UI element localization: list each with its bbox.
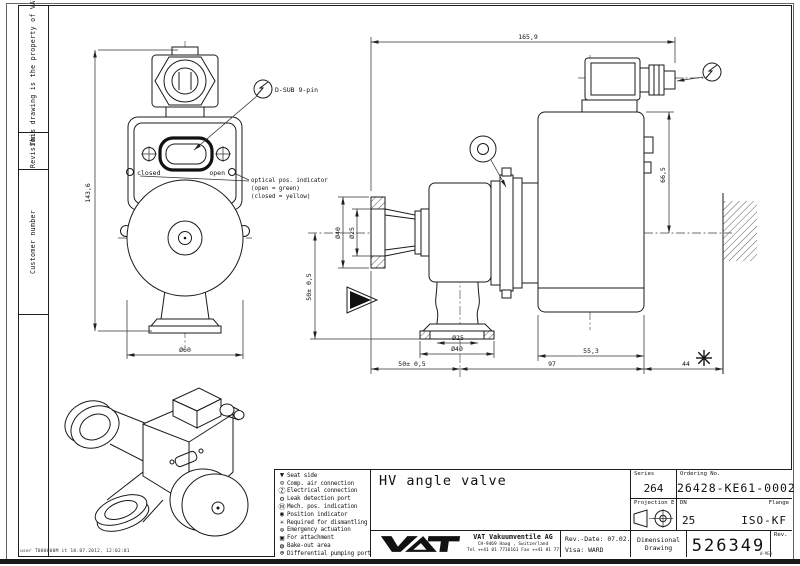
property-note: This drawing is the property of VAT. [29,0,37,146]
company-phone: Tel ++41 81 7716161 Fax ++41 81 7714830 [467,548,559,553]
flange-label: Flange [769,500,789,506]
bottom-flange [149,319,221,333]
legend-label: Position indicator [287,512,347,518]
inlet-flange [371,197,429,268]
legend-item: ⊕Differential pumping port [275,550,370,558]
projection-cell: Projection E [630,498,676,530]
electrical-connection-icon [254,80,272,98]
company-cell: VAT Vakuumventile AG CH-9469 Haag , Swit… [370,530,560,557]
electrical-connection-icon [703,63,721,81]
revision-label: Revision [29,134,37,168]
visa: Visa: WARD [565,546,603,554]
legend-item: ⊙Comp. air connection [275,480,370,488]
ordering-no-cell: Ordering No. 26428-KE61-0002 [676,469,792,498]
dim-chain-left: 50± 0,5 [398,360,425,368]
doc-type-cell: Dimensional Drawing [630,530,686,557]
rev-label: Rev. [774,532,787,538]
seat-side-marker [347,287,377,313]
dim-height: 143,6 [84,183,92,203]
rev-date: Rev.-Date: 07.02.12 [565,535,638,543]
dim-actuator-width: 55,3 [583,347,599,355]
valve-body-side [429,168,538,298]
indicator-note-2: (open = green) [251,186,300,192]
company-name: VAT Vakuumventile AG [467,533,559,541]
dismantling-star [696,350,712,366]
legend-label: For attachment [287,535,334,541]
dn-label: DN [680,500,687,506]
company-info: VAT Vakuumventile AG CH-9469 Haag , Swit… [467,533,559,553]
actuator-cylinder [538,95,653,312]
electrical-connection-icon: Ⓩ [277,488,287,495]
open-label: open [209,169,225,177]
dim-center-to-flange: 50± 0,5 [305,273,313,300]
dn-flange-cell: DN Flange 25 ISO-KF [676,498,792,530]
drawing-number: 526349 [687,536,770,556]
legend-label: Electrical connection [287,488,357,494]
sidebar-property-cell: This drawing is the property of VAT. [18,6,48,133]
sidebar-divider [48,5,49,557]
dim-height-right: 66,5 [659,167,667,183]
leak-detection-icon: ⚙ [277,496,287,503]
projection-label: Projection E [634,500,674,506]
drawing-sheet: This drawing is the property of VAT. Rev… [0,0,800,566]
dim-actuator-diameter: Ø60 [179,346,191,354]
rev-cell: Rev. [770,530,792,557]
dim-port-id: Ø25 [348,227,356,239]
ordering-no-value: 26428-KE61-0002 [677,481,792,495]
ordering-no-label: Ordering No. [680,471,720,477]
pneumatic-actuator [121,180,250,319]
dim-chain-right: 44 [682,360,690,368]
legend-label: Leak detection port [287,496,351,502]
company-address: CH-9469 Haag , Switzerland [467,542,559,547]
diff-pumping-icon: ⊕ [277,550,287,557]
legend-item: ⓏElectrical connection [275,488,370,496]
legend-item: ◍Bake-out area [275,542,370,550]
revision-date-cell: Rev.-Date: 07.02.12 Visa: WARD [560,530,630,557]
isometric-view-drawing [55,372,280,556]
dim-overall: 165,9 [518,33,538,41]
legend-item: ⊜Emergency actuation [275,527,370,535]
flange-value: ISO-KF [741,514,787,527]
legend-label: Required for dismantling [287,520,367,526]
dn-value: 25 [682,514,695,527]
legend-item: ✳Required for dismantling [275,519,370,527]
series-label: Series [634,471,654,477]
legend: ▼Seat side ⊙Comp. air connection ⓏElectr… [274,469,370,557]
drawing-title: HV angle valve [379,473,507,489]
legend-label: Emergency actuation [287,527,351,533]
dim-bottom-od: Ø40 [451,345,463,353]
mounting-wall [723,193,757,374]
bottom-port [420,282,494,339]
dim-port-od: Ø40 [334,227,342,239]
doc-type-line1: Dimensional [631,536,686,544]
legend-label: Differential pumping port [287,551,371,557]
legend-item: ⚙Leak detection port [275,495,370,503]
iso-rear-flange [58,393,155,465]
solenoid-actuator [152,47,218,107]
legend-item: ▣For attachment [275,534,370,542]
dim-chain-mid: 97 [548,360,556,368]
page-edge-bar [0,559,800,564]
emergency-actuation-icon: ⊜ [277,527,287,534]
sidebar-revision-cell: Revision [18,133,48,170]
legend-label: Seat side [287,473,317,479]
legend-label: Bake-out area [287,543,331,549]
front-view-drawing: D-SUB 9-pin closed open optical pos. ind… [60,25,330,370]
corner-mark: W-MEA [760,551,772,556]
legend-item: ▼Seat side [275,472,370,480]
side-view-drawing: 165,9 66,5 Ø40 Ø25 50± 0,5 Ø25 Ø40 [300,25,795,380]
series-cell: Series 264 [630,469,676,498]
legend-label: Mech. pos. indication [287,504,357,510]
vat-logo [376,533,464,555]
legend-label: Comp. air connection [287,481,354,487]
doc-type-line2: Drawing [631,544,686,552]
solenoid-connector [585,58,721,100]
series-value: 264 [631,482,676,495]
sidebar-customer-cell: Customer number [18,170,48,315]
legend-item: ◉Position indicator [275,511,370,519]
plot-footer-note: user T000000M it 10.07.2012, 12:02:01 [20,549,130,554]
projection-symbol-icon [633,508,675,529]
iso-actuator-disc [170,469,248,536]
position-indicator-icon [470,136,496,162]
customer-number-label: Customer number [29,210,37,274]
attachment-icon: ▣ [277,535,287,542]
title-cell: HV angle valve [370,469,630,530]
drawing-number-cell: 526349 [686,530,770,557]
dim-bottom-id: Ø25 [452,334,464,342]
legend-item: ⓂMech. pos. indication [275,503,370,511]
